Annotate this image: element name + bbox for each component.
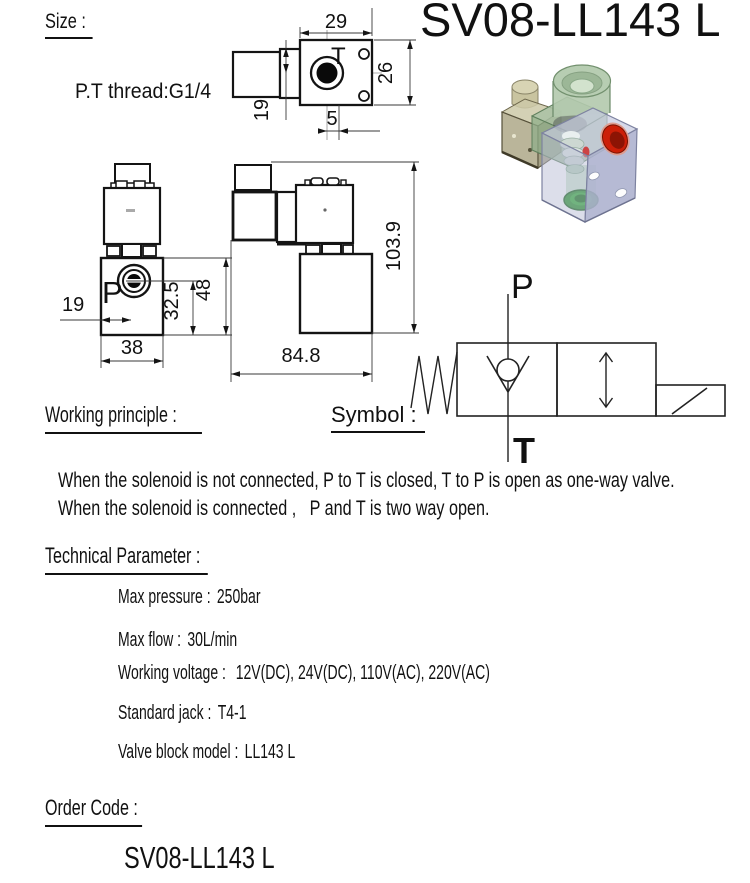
order-code-label: Order Code : xyxy=(45,795,142,827)
front-coil xyxy=(104,188,160,244)
symbol-port-t: T xyxy=(513,430,535,471)
hydraulic-symbol: P T xyxy=(403,262,750,470)
side-coil xyxy=(296,185,353,243)
symbol-label: Symbol : xyxy=(331,402,425,433)
side-connector-top xyxy=(235,165,271,190)
param-label: Max pressure : xyxy=(118,586,211,608)
param-value: LL143 L xyxy=(245,741,296,763)
dim-29: 29 xyxy=(325,11,347,33)
size-section-label: Size : xyxy=(45,10,92,39)
param-value: 12V(DC), 24V(DC), 110V(AC), 220V(AC) xyxy=(236,662,490,684)
dim-19-front: 19 xyxy=(62,294,84,316)
dim-38: 38 xyxy=(121,337,143,359)
thread-note: P.T thread:G1/4 xyxy=(75,79,211,104)
dim-32-5: 32.5 xyxy=(161,282,183,321)
dim-19-top: 19 xyxy=(251,99,273,121)
technical-parameter-label: Technical Parameter : xyxy=(45,543,208,575)
param-value: 30L/min xyxy=(187,629,237,651)
solenoid-symbol xyxy=(656,385,725,416)
param-row-max-pressure: Max pressure :250bar xyxy=(118,585,322,609)
top-view-drawing: T 29 26 19 5 xyxy=(225,25,440,160)
param-label: Working voltage : xyxy=(118,662,226,684)
param-value: T4-1 xyxy=(218,702,247,724)
front-view-drawing: P 19 32.5 48 38 xyxy=(58,160,233,372)
working-principle-label: Working principle : xyxy=(45,402,202,434)
working-principle-line1: When the solenoid is not connected, P to… xyxy=(58,468,675,493)
param-value: 250bar xyxy=(217,586,261,608)
order-code-value: SV08-LL143 L xyxy=(124,841,275,875)
datasheet-page: Size : SV08-LL143 L P.T thread:G1/4 T 29 xyxy=(0,0,750,883)
working-principle-line2: When the solenoid is connected , P and T… xyxy=(58,496,489,521)
param-label: Max flow : xyxy=(118,629,181,651)
side-view-drawing: 103.9 84.8 xyxy=(228,155,423,387)
valve-3d-render xyxy=(495,55,700,265)
symbol-port-p: P xyxy=(511,268,534,306)
dim-84-8: 84.8 xyxy=(282,345,321,367)
param-row-working-voltage: Working voltage :12V(DC), 24V(DC), 110V(… xyxy=(118,661,649,685)
param-row-standard-jack: Standard jack :T4-1 xyxy=(118,701,302,725)
param-label: Valve block model : xyxy=(118,741,238,763)
size-section: Size : xyxy=(45,10,106,39)
param-row-max-flow: Max flow :30L/min xyxy=(118,628,288,652)
param-row-valve-block-model: Valve block model :LL143 L xyxy=(118,740,371,764)
dim-5: 5 xyxy=(326,108,337,130)
top-view-coil xyxy=(233,52,280,97)
flow-arrow-symbol xyxy=(600,353,613,407)
param-label: Standard jack : xyxy=(118,702,211,724)
top-view-hole-2 xyxy=(359,91,369,101)
dim-26: 26 xyxy=(375,62,397,84)
side-connector-body xyxy=(233,192,276,240)
top-view-neck xyxy=(280,49,300,98)
top-view-hole-1 xyxy=(359,49,369,59)
port-p-marker: P xyxy=(102,275,123,310)
dim-103-9: 103.9 xyxy=(383,221,405,271)
side-valve-body xyxy=(300,254,372,333)
port-t-marker: T xyxy=(331,43,346,70)
page-title: SV08-LL143 L xyxy=(420,0,721,43)
dim-48: 48 xyxy=(193,279,215,301)
